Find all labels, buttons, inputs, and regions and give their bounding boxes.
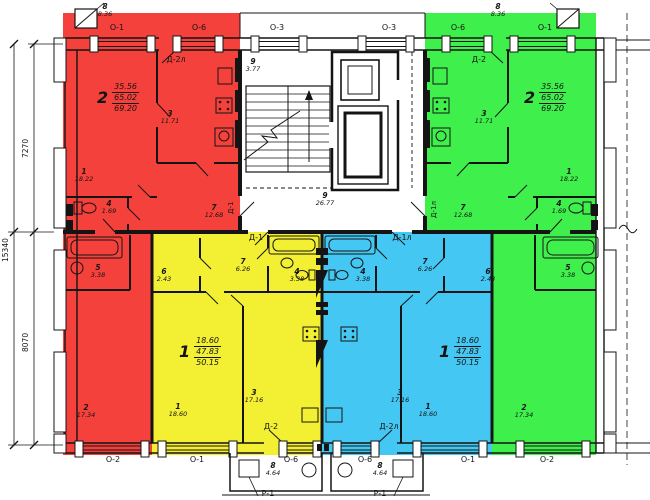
- room-label: 43.38: [356, 268, 370, 284]
- door-mark: Д-1л: [392, 234, 411, 242]
- room-label: 41.69: [102, 200, 116, 216]
- room-label: 311.71: [475, 110, 494, 126]
- window-mark: О-6: [284, 456, 298, 464]
- room-label: 118.22: [75, 168, 94, 184]
- dimension-total: 15340: [2, 238, 10, 262]
- door-mark: Д-2л: [166, 56, 185, 64]
- room-label: 76.26: [236, 258, 250, 274]
- elevator-shaft: [246, 52, 412, 190]
- window-mark: О-1: [190, 456, 204, 464]
- room-label: 62.43: [481, 268, 495, 284]
- floor-plan-drawing: [0, 0, 650, 500]
- balcony-label: 8 4.64: [266, 462, 280, 478]
- room-label: 311.71: [161, 110, 180, 126]
- room-label: 217.34: [515, 404, 534, 420]
- apartment-summary-red: 2 35.56 65.02 69.20: [97, 82, 139, 114]
- room-label: 118.22: [560, 168, 579, 184]
- room-label: 317.16: [245, 389, 264, 405]
- room-label: 43.38: [290, 268, 304, 284]
- window-mark: О-3: [270, 24, 284, 32]
- window-mark: О-6: [451, 24, 465, 32]
- room-label: 76.26: [418, 258, 432, 274]
- room-label: 118.60: [169, 403, 188, 419]
- dimension-bottom: 8070: [22, 333, 30, 352]
- room-label: 118.60: [419, 403, 438, 419]
- stair-direction-arrow: [305, 90, 313, 100]
- window-mark: О-1: [538, 24, 552, 32]
- room-label-stair: 9 3.77: [246, 58, 260, 74]
- apartment-summary-yellow: 1 18.60 47.83 50.15: [179, 336, 221, 368]
- room-label: 712.68: [454, 204, 473, 220]
- staircase: [244, 86, 330, 172]
- door-mark: Д-2: [472, 56, 486, 64]
- room-label: 53.38: [91, 264, 105, 280]
- porch-mark: Р-1: [374, 490, 387, 498]
- window-mark: О-1: [110, 24, 124, 32]
- dimension-top: 7270: [22, 139, 30, 158]
- door-mark: Д-1: [249, 234, 263, 242]
- adjacent-section-lines: [616, 13, 650, 465]
- room-label: 41.69: [552, 200, 566, 216]
- window-mark: О-2: [106, 456, 120, 464]
- apartment-summary-blue: 1 18.60 47.83 50.15: [439, 336, 481, 368]
- balcony-label: 8 8.36: [491, 3, 505, 19]
- balcony-label: 8 4.64: [373, 462, 387, 478]
- door-mark: Д-1л: [431, 201, 438, 218]
- window-mark: О-6: [358, 456, 372, 464]
- window-mark: О-1: [461, 456, 475, 464]
- window-mark: О-2: [540, 456, 554, 464]
- door-mark: Д-2: [264, 423, 278, 431]
- room-label: 62.43: [157, 268, 171, 284]
- floor-plan: О-1 О-6 О-3 О-3 О-6 О-1 О-2 О-1 О-6 О-6 …: [0, 0, 650, 500]
- balcony-label: 8 8.36: [98, 3, 112, 19]
- door-mark: Д-2л: [379, 423, 398, 431]
- room-label: 53.38: [561, 264, 575, 280]
- room-label: 217.34: [77, 404, 96, 420]
- room-label-hall: 9 26.77: [316, 192, 335, 208]
- room-label: 317.16: [391, 389, 410, 405]
- window-mark: О-6: [192, 24, 206, 32]
- apartment-summary-green: 2 35.56 65.02 69.20: [524, 82, 566, 114]
- window-mark: О-3: [382, 24, 396, 32]
- porch-mark: Р-1: [262, 490, 275, 498]
- room-label: 712.68: [205, 204, 224, 220]
- door-mark: Д-1: [228, 202, 235, 214]
